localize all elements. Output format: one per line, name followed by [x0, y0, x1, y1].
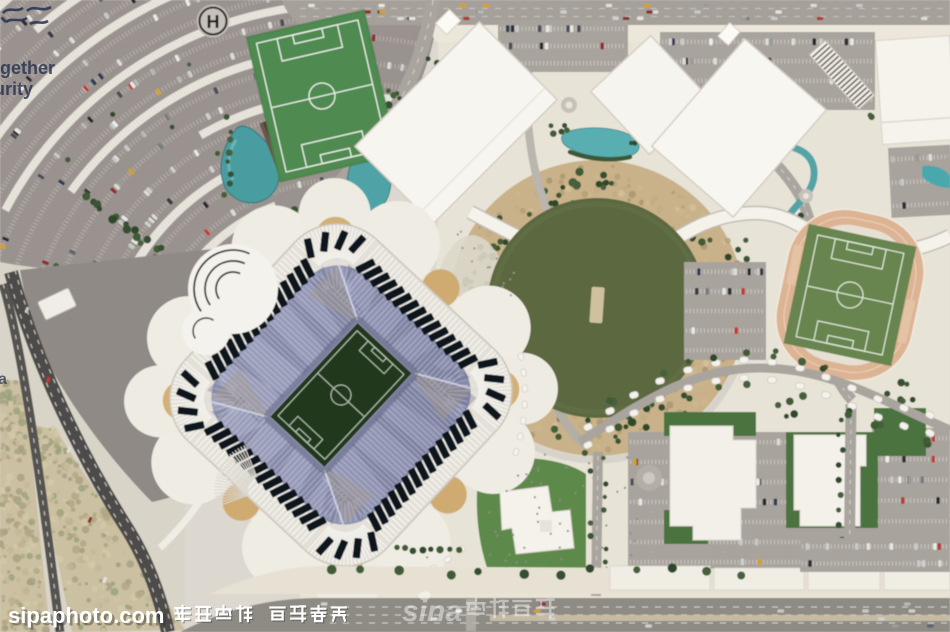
svg-text:urity: urity — [0, 79, 33, 99]
svg-text:ogether: ogether — [0, 58, 55, 78]
svg-text:H: H — [207, 12, 220, 32]
svg-text:sina: sina — [402, 595, 462, 628]
svg-text:a: a — [0, 371, 7, 388]
svg-text:sipaphoto.com: sipaphoto.com — [8, 603, 164, 628]
